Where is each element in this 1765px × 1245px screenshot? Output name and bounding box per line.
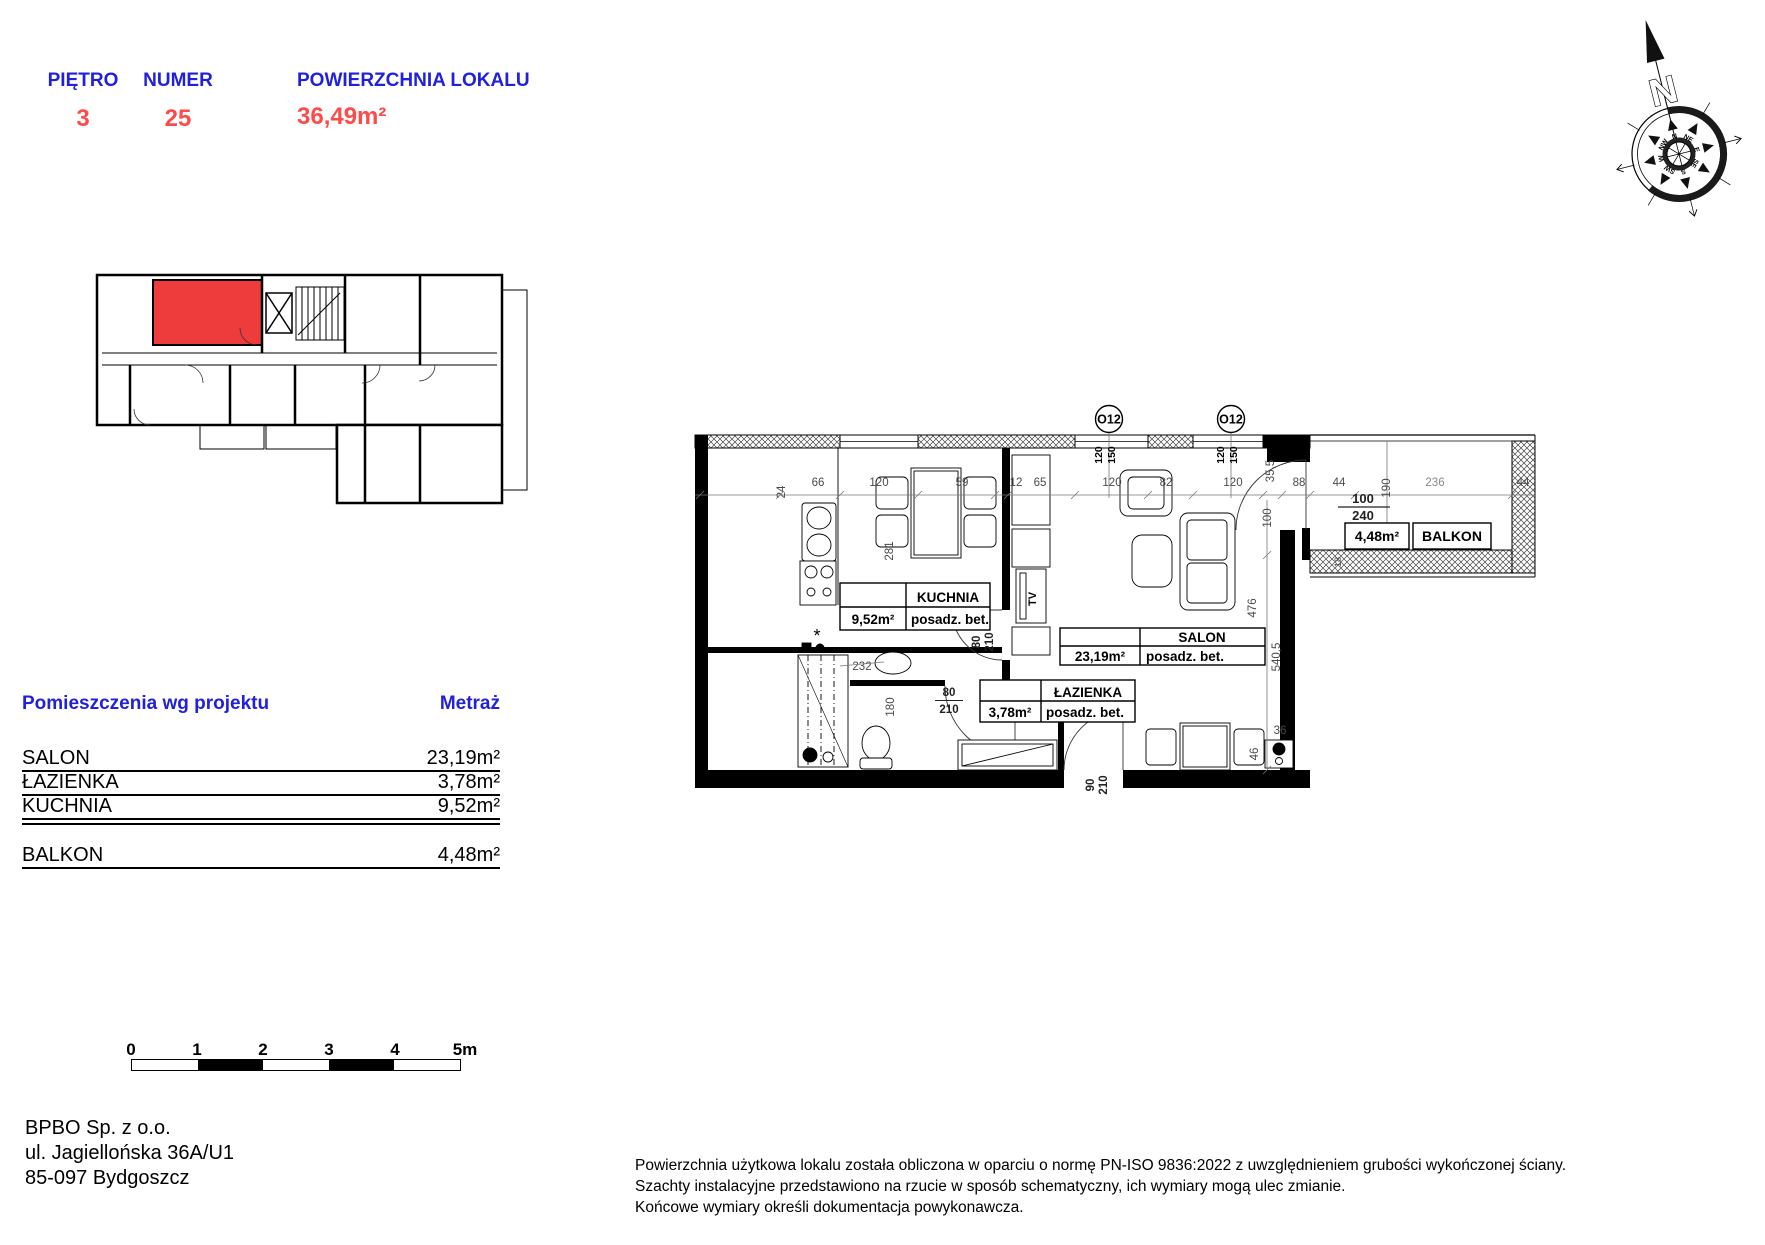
- floor-label: PIĘTRO: [38, 70, 128, 92]
- svg-text:90: 90: [1085, 779, 1097, 792]
- highlighted-unit: [153, 280, 262, 345]
- number-header-cell: NUMER 25: [133, 70, 223, 133]
- company-name: BPBO Sp. z o.o.: [25, 1116, 234, 1141]
- row-name: KUCHNIA: [22, 795, 112, 818]
- disclaimer-line: Szachty instalacyjne przedstawiono na rz…: [635, 1176, 1760, 1197]
- disclaimer: Powierzchnia użytkowa lokalu została obl…: [635, 1155, 1760, 1218]
- svg-text:46: 46: [1249, 748, 1261, 761]
- rooms-table: Pomieszczenia wg projektu Metraż: [22, 693, 500, 715]
- balcony-wall: [1512, 441, 1535, 573]
- balcony: [1310, 435, 1535, 577]
- room-area: 3,78m²: [989, 705, 1032, 720]
- svg-text:35,5: 35,5: [1265, 460, 1277, 482]
- scale-label: 2: [258, 1040, 267, 1060]
- svg-text:190: 190: [1381, 478, 1393, 497]
- room-name: ŁAZIENKA: [1054, 685, 1122, 700]
- row-name: ŁAZIENKA: [22, 771, 119, 794]
- svg-text:210: 210: [939, 704, 958, 716]
- company-city: 85-097 Bydgoszcz: [25, 1166, 234, 1191]
- toilet: [862, 726, 890, 760]
- scale-label: 3: [324, 1040, 333, 1060]
- rooms-table-header-area: Metraż: [440, 693, 500, 715]
- svg-text:232: 232: [852, 661, 871, 673]
- row-area: 3,78m²: [438, 771, 500, 794]
- scale-label: 1: [192, 1040, 201, 1060]
- scale-bar: 0 1 2 3 4 5m: [0, 1040, 520, 1080]
- asterisk-symbol: *: [813, 626, 820, 646]
- svg-text:O12: O12: [1097, 413, 1121, 427]
- svg-text:82: 82: [1160, 477, 1173, 489]
- disclaimer-line: Powierzchnia użytkowa lokalu została obl…: [635, 1155, 1760, 1176]
- svg-text:120: 120: [1102, 477, 1121, 489]
- chair: [1146, 729, 1176, 765]
- svg-text:120: 120: [1223, 477, 1242, 489]
- washbasin: [875, 652, 911, 674]
- room-name: KUCHNIA: [917, 590, 979, 605]
- svg-text:65: 65: [1034, 477, 1047, 489]
- svg-text:120: 120: [1093, 446, 1105, 464]
- room-floor: posadz. bet.: [1146, 649, 1224, 664]
- scale-bar-strip: [131, 1059, 461, 1071]
- area-header-cell: POWIERZCHNIA LOKALU 36,49m²: [297, 70, 577, 131]
- room-name: BALKON: [1422, 528, 1482, 544]
- floor-value: 3: [38, 105, 128, 133]
- apartment-floor-plan: TV *: [690, 355, 1550, 795]
- svg-text:180: 180: [885, 697, 897, 716]
- svg-text:120: 120: [1215, 446, 1227, 464]
- company-street: ul. Jagiellońska 36A/U1: [25, 1141, 234, 1166]
- drain: [803, 748, 817, 762]
- row-name: SALON: [22, 747, 90, 770]
- svg-text:59: 59: [956, 477, 969, 489]
- svg-text:88: 88: [1293, 477, 1306, 489]
- room-area: 4,48m²: [1355, 528, 1400, 544]
- svg-text:476: 476: [1247, 598, 1259, 617]
- svg-text:540,5: 540,5: [1271, 643, 1283, 672]
- svg-text:150: 150: [1106, 446, 1118, 464]
- svg-text:281: 281: [884, 541, 896, 560]
- svg-text:24: 24: [776, 485, 788, 498]
- room-floor: posadz. bet.: [1046, 705, 1124, 720]
- chair: [964, 477, 996, 509]
- svg-text:66: 66: [812, 477, 825, 489]
- kitchen-furniture: [800, 448, 996, 605]
- room-floor: posadz. bet.: [911, 612, 989, 627]
- svg-text:O12: O12: [1219, 413, 1243, 427]
- room-label-balkon: 4,48m² BALKON: [1345, 523, 1491, 549]
- coffee-table: [1132, 535, 1172, 587]
- svg-text:80: 80: [943, 687, 956, 699]
- svg-text:236: 236: [1425, 477, 1444, 489]
- room-name: SALON: [1178, 630, 1225, 645]
- area-label: POWIERZCHNIA LOKALU: [297, 70, 577, 92]
- compass-dir-label: E: [1692, 147, 1700, 154]
- area-value: 36,49m²: [297, 103, 577, 131]
- building-overview-plan: [90, 235, 535, 510]
- table-row: KUCHNIA 9,52m²: [22, 794, 500, 818]
- scale-label: 4: [390, 1040, 399, 1060]
- svg-text:210: 210: [984, 632, 996, 651]
- scale-label: 5m: [453, 1040, 478, 1060]
- table-row: BALKON 4,48m²: [22, 840, 500, 869]
- number-value: 25: [133, 105, 223, 133]
- compass-dir-label: N: [1671, 133, 1678, 141]
- north-arrow: [1637, 18, 1665, 63]
- compass-dir-label: S: [1680, 167, 1687, 175]
- compass-rose: N N NE E SE S SW W NW: [1593, 2, 1765, 232]
- row-area: 9,52m²: [438, 795, 500, 818]
- rooms-table-header-name: Pomieszczenia wg projektu: [22, 693, 269, 715]
- svg-text:12: 12: [1010, 477, 1023, 489]
- svg-text:80: 80: [971, 636, 983, 649]
- row-area: 4,48m²: [438, 844, 500, 867]
- number-label: NUMER: [133, 70, 223, 92]
- svg-text:120: 120: [869, 477, 888, 489]
- room-area: 23,19m²: [1075, 649, 1126, 664]
- room-area: 9,52m²: [852, 612, 895, 627]
- svg-text:150: 150: [1228, 446, 1240, 464]
- floor-header-cell: PIĘTRO 3: [38, 70, 128, 133]
- svg-text:44: 44: [1333, 477, 1346, 489]
- svg-text:18: 18: [1333, 557, 1343, 567]
- scale-label: 0: [126, 1040, 135, 1060]
- svg-text:240: 240: [1352, 508, 1374, 523]
- svg-text:100: 100: [1352, 491, 1374, 506]
- svg-text:44: 44: [1517, 477, 1530, 489]
- table-row: SALON 23,19m²: [22, 744, 500, 772]
- table-row: ŁAZIENKA 3,78m²: [22, 770, 500, 796]
- tv-label: TV: [1027, 591, 1039, 606]
- svg-text:36: 36: [1274, 725, 1287, 737]
- disclaimer-line: Końcowe wymiary określi dokumentacja pow…: [635, 1197, 1760, 1218]
- row-area: 23,19m²: [427, 747, 500, 770]
- table-divider: [22, 818, 500, 825]
- chair: [964, 515, 996, 547]
- row-name: BALKON: [22, 844, 103, 867]
- floorplan-sheet: { "header": { "cells": [ {"label": "PIĘT…: [0, 0, 1765, 1245]
- company-address: BPBO Sp. z o.o. ul. Jagiellońska 36A/U1 …: [25, 1116, 234, 1191]
- svg-text:100: 100: [1262, 508, 1274, 527]
- svg-text:210: 210: [1098, 775, 1110, 794]
